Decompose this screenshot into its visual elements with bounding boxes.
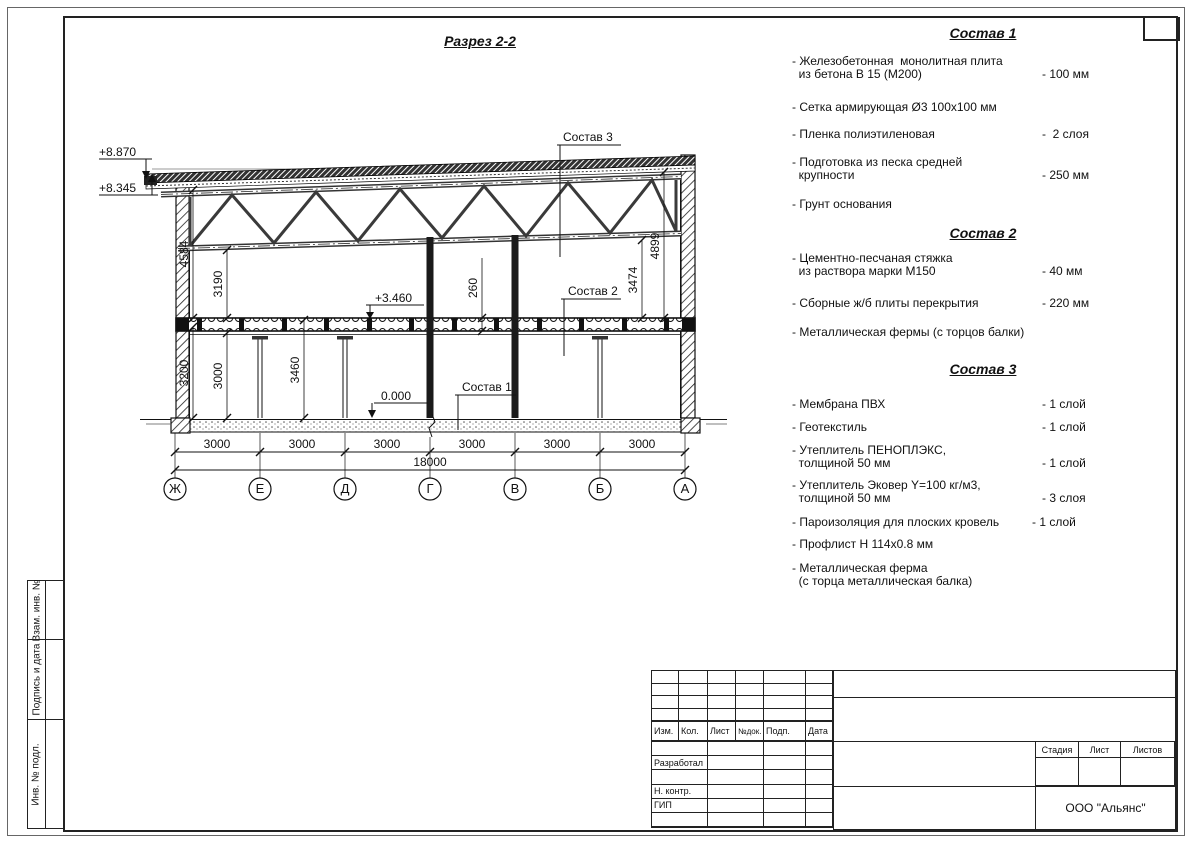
item-text: - Сетка армирующая Ø3 100х100 мм [792, 101, 1042, 115]
axis-label: В [511, 481, 520, 496]
col-ndok: №док. [736, 722, 764, 741]
elevation-roof-low: +8.345 [99, 181, 136, 195]
list-item: - Профлист Н 114х0.8 мм [792, 538, 1174, 552]
item-text: - Сборные ж/б плиты перекрытия [792, 297, 1042, 311]
dim-right-outer: 4899 [648, 232, 662, 259]
elevation-floor2: +3.460 [375, 291, 412, 305]
axis-label: Г [426, 481, 433, 496]
titleblock-cell-doc-name [833, 741, 1036, 787]
dim-bay: 3000 [374, 437, 401, 451]
dim-bay: 3000 [204, 437, 231, 451]
item-value: - 1 слой [1042, 457, 1086, 471]
col-data: Дата [806, 722, 833, 741]
sostav3-title: Состав 3 [792, 363, 1174, 377]
list-item: - Цементно-песчаная стяжка из раствора м… [792, 252, 1174, 279]
item-text: - Металлическая ферма [792, 562, 1042, 576]
item-value: - 40 мм [1042, 265, 1083, 279]
stage-col: Стадия [1036, 742, 1079, 758]
list-item: - Сборные ж/б плиты перекрытия - 220 мм [792, 297, 1174, 311]
list-item: - Металлическая фермы (с торцов балки) [792, 326, 1174, 340]
role-gip: ГИП [652, 799, 708, 813]
col-list: Лист [708, 722, 736, 741]
axis-label: Ж [169, 481, 181, 496]
item-text: - Утеплитель Эковер Y=100 кг/м3, [792, 479, 1042, 493]
list-item: - Железобетонная монолитная плита из бет… [792, 55, 1174, 82]
item-text: толщиной 50 мм [792, 492, 1042, 506]
dim-left-outer: 4584 [177, 240, 191, 267]
list-item: - Пленка полиэтиленовая - 2 слоя [792, 128, 1174, 142]
titleblock-org-cell: ООО "Альянс" [1035, 786, 1176, 830]
col-izm: Изм. [652, 722, 679, 741]
dim-right-inner: 3474 [626, 266, 640, 293]
axis-bubbles: Ж Е Д Г В Б А [164, 478, 696, 500]
list-item: - Сетка армирующая Ø3 100х100 мм [792, 101, 1174, 115]
item-text: - Цементно-песчаная стяжка [792, 252, 1042, 266]
sostav2-title: Состав 2 [792, 227, 1174, 241]
dim-gf-clear: 3000 [211, 362, 225, 389]
elevation-roof-high: +8.870 [99, 145, 136, 159]
item-text: - Подготовка из песка средней [792, 156, 1042, 170]
item-value: - 3 слоя [1042, 492, 1086, 506]
dim-total: 18000 [413, 455, 447, 469]
item-value: - 2 слоя [1042, 128, 1089, 142]
dim-gf-full: 3460 [288, 356, 302, 383]
list-item: - Металлическая ферма (с торца металличе… [792, 562, 1174, 589]
list-item: - Подготовка из песка средней крупности … [792, 156, 1174, 183]
list-item: - Пароизоляция для плоских кровель - 1 с… [792, 516, 1174, 530]
dim-slab: 260 [466, 278, 480, 298]
col-podp: Подп. [764, 722, 806, 741]
listov-col: Листов [1121, 742, 1175, 758]
item-text: - Утеплитель ПЕНОПЛЭКС, [792, 444, 1042, 458]
dim-bay: 3000 [459, 437, 486, 451]
callout-sostav1: Состав 1 [462, 380, 512, 394]
titleblock-cell-doc-number [833, 697, 1176, 742]
item-value: - 220 мм [1042, 297, 1089, 311]
list-item: - Грунт основания [792, 198, 1174, 212]
drawing-sheet: Взам. инв. № Подпись и дата Инв. № подл.… [0, 0, 1191, 842]
sostav1-section: Состав 1 - Железобетонная монолитная пли… [792, 27, 1174, 211]
titleblock-header-row: Изм. Кол. Лист №док. Подп. Дата [651, 721, 834, 742]
dim-bay: 3000 [289, 437, 316, 451]
item-text: крупности [792, 169, 1042, 183]
list-item: - Утеплитель Эковер Y=100 кг/м3, толщино… [792, 479, 1174, 506]
item-value: - 1 слой [1042, 421, 1086, 435]
item-value: - 250 мм [1042, 169, 1089, 183]
axis-label: Е [256, 481, 265, 496]
item-text: - Геотекстиль [792, 421, 1042, 435]
list-item: - Утеплитель ПЕНОПЛЭКС, толщиной 50 мм -… [792, 444, 1174, 471]
item-text: - Пароизоляция для плоских кровель [792, 516, 1032, 530]
callout-sostav2: Состав 2 [568, 284, 618, 298]
column-axis-g [427, 237, 434, 418]
item-text: - Грунт основания [792, 198, 1042, 212]
item-text: - Пленка полиэтиленовая [792, 128, 1042, 142]
list-item: - Мембрана ПВХ - 1 слой [792, 398, 1174, 412]
titleblock-revision-grid [651, 670, 834, 722]
titleblock-roles-grid: Разработал Н. контр. ГИП [651, 741, 834, 828]
axis-label: А [681, 481, 690, 496]
dim-gf-wall: 3200 [177, 359, 191, 386]
titleblock-cell-bottom-left [833, 786, 1036, 830]
item-text: - Металлическая фермы (с торцов балки) [792, 326, 1092, 340]
item-value: - 1 слой [1042, 398, 1086, 412]
item-text: (с торца металлическая балка) [792, 575, 1042, 589]
column-axis-v [512, 235, 519, 418]
item-text: из раствора марки М150 [792, 265, 1042, 279]
list-item: - Геотекстиль - 1 слой [792, 421, 1174, 435]
titleblock-cell-top [833, 670, 1176, 698]
role-ncontrol: Н. контр. [652, 785, 708, 799]
sostav2-section: Состав 2 - Цементно-песчаная стяжка из р… [792, 227, 1174, 340]
vertical-dimension-labels: 4584 3190 260 3474 4899 3200 3000 3460 [177, 232, 662, 389]
list-col: Лист [1079, 742, 1121, 758]
item-value: - 100 мм [1042, 68, 1089, 82]
sostav1-title: Состав 1 [792, 27, 1174, 41]
item-value: - 1 слой [1032, 516, 1076, 530]
axis-label: Д [341, 481, 350, 496]
sostav3-section: Состав 3 - Мембрана ПВХ - 1 слой - Геоте… [792, 363, 1174, 589]
role-developer: Разработал [652, 756, 708, 770]
dim-left-inner: 3190 [211, 270, 225, 297]
col-kol: Кол. [679, 722, 708, 741]
org-name: ООО "Альянс" [1065, 801, 1145, 815]
item-text: - Железобетонная монолитная плита [792, 55, 1042, 69]
roof-truss [161, 177, 681, 249]
item-text: толщиной 50 мм [792, 457, 1042, 471]
item-text: из бетона В 15 (М200) [792, 68, 1042, 82]
callout-sostav3: Состав 3 [563, 130, 613, 144]
titleblock-stage-grid: Стадия Лист Листов [1035, 741, 1176, 787]
item-text: - Профлист Н 114х0.8 мм [792, 538, 1042, 552]
floor-slab [176, 318, 695, 335]
dim-bay: 3000 [629, 437, 656, 451]
item-text: - Мембрана ПВХ [792, 398, 1042, 412]
elevation-ground: 0.000 [381, 389, 411, 403]
axis-label: Б [596, 481, 605, 496]
dim-bay: 3000 [544, 437, 571, 451]
